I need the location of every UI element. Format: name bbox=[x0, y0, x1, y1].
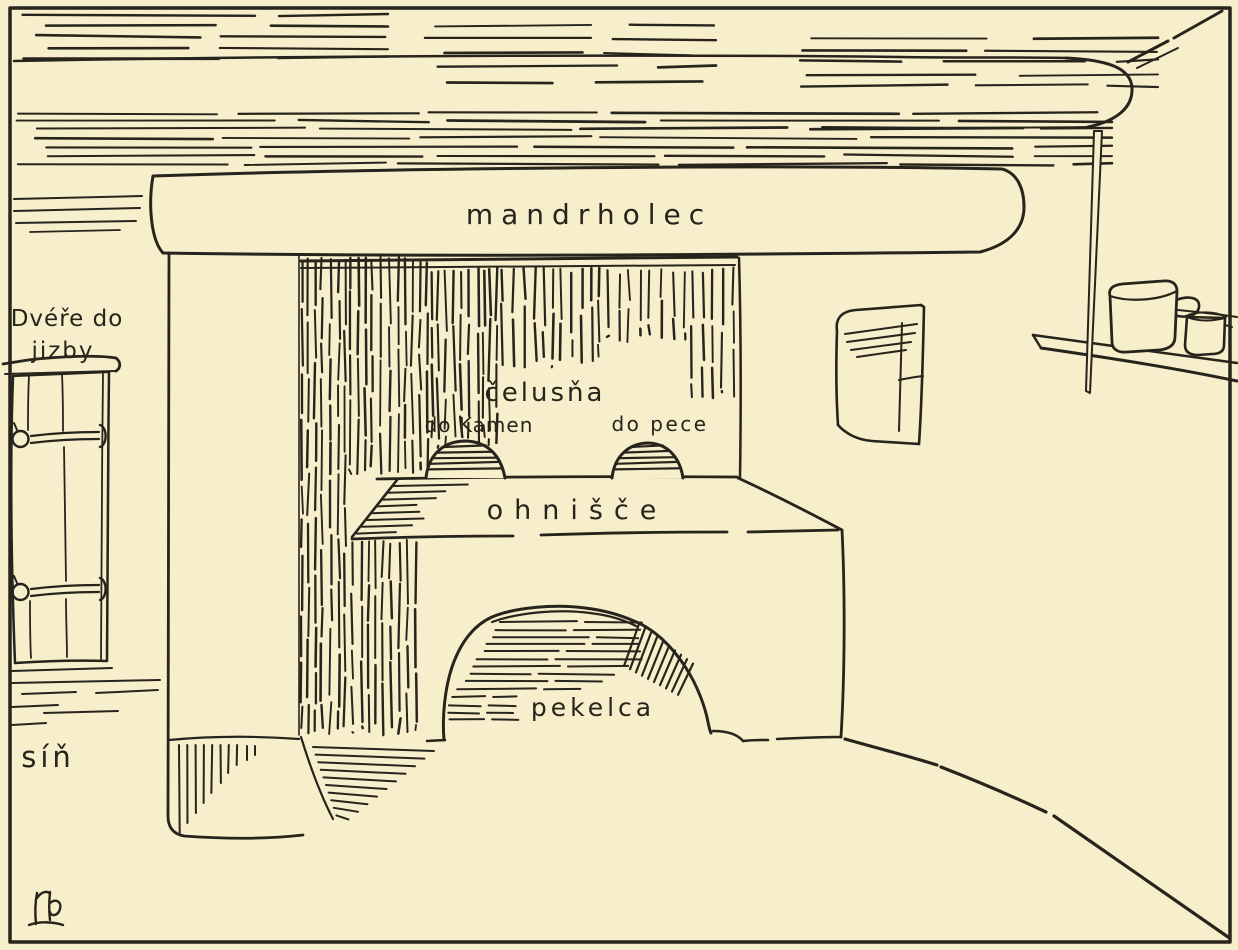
hatch-stroke bbox=[411, 374, 413, 434]
hatch-stroke bbox=[468, 325, 469, 354]
hatch-stroke bbox=[684, 272, 685, 327]
hatch-stroke bbox=[419, 320, 421, 348]
hatch-stroke bbox=[351, 687, 353, 724]
hatch-stroke bbox=[539, 674, 615, 675]
hatch-stroke bbox=[447, 82, 552, 83]
hatch-stroke bbox=[302, 309, 303, 365]
hatch-stroke bbox=[500, 621, 577, 622]
hatch-stroke bbox=[479, 269, 480, 326]
hatch-stroke bbox=[460, 364, 462, 409]
hatch-stroke bbox=[323, 777, 396, 781]
hatch-stroke bbox=[597, 637, 638, 638]
hatch-stroke bbox=[382, 541, 384, 577]
hatch-stroke bbox=[512, 269, 513, 312]
mug-small bbox=[1185, 312, 1232, 355]
hatch-stroke bbox=[747, 147, 1012, 148]
hatch-stroke bbox=[502, 270, 503, 301]
hatch-stroke bbox=[375, 541, 376, 588]
hatch-stroke bbox=[23, 15, 255, 16]
hatch-stroke bbox=[619, 457, 675, 458]
hatch-stroke bbox=[398, 163, 659, 164]
hatch-stroke bbox=[660, 650, 675, 685]
hatch-stroke bbox=[321, 705, 322, 728]
hatch-stroke bbox=[672, 659, 687, 691]
hatch-stroke bbox=[543, 332, 544, 357]
hatch-stroke bbox=[496, 267, 498, 320]
label-dvere-line2: jizby bbox=[30, 338, 94, 364]
hatch-stroke bbox=[452, 696, 485, 697]
floor-edge-right bbox=[845, 739, 1228, 937]
hatch-stroke bbox=[445, 271, 447, 331]
hatch-stroke bbox=[338, 474, 339, 534]
hatch-stroke bbox=[642, 637, 657, 675]
hatch-stroke bbox=[612, 113, 899, 114]
hatch-stroke bbox=[534, 268, 536, 319]
hatch-stroke bbox=[654, 646, 669, 682]
hatch-stroke bbox=[568, 666, 628, 667]
hatch-stroke bbox=[357, 532, 396, 534]
hatch-stroke bbox=[535, 323, 537, 361]
hatch-stroke bbox=[437, 271, 439, 320]
hatch-stroke bbox=[614, 468, 680, 469]
label-ohnisce: ohnišče bbox=[487, 495, 668, 526]
hatch-stroke bbox=[445, 52, 583, 53]
hatch-stroke bbox=[658, 66, 716, 68]
hatch-stroke bbox=[390, 662, 392, 727]
hatch-stroke bbox=[433, 458, 497, 459]
hatch-stroke bbox=[338, 539, 340, 578]
hatch-stroke bbox=[405, 258, 406, 324]
hatch-stroke bbox=[382, 684, 383, 736]
hatch-stroke bbox=[599, 268, 600, 296]
hatch-stroke bbox=[308, 588, 309, 636]
hatch-stroke bbox=[22, 692, 76, 694]
hatch-stroke bbox=[361, 662, 362, 722]
hatch-stroke bbox=[489, 269, 491, 315]
hatch-stroke bbox=[913, 112, 1097, 114]
hatch-stroke bbox=[388, 491, 445, 493]
hatch-stroke bbox=[407, 540, 408, 604]
hatch-stroke bbox=[223, 138, 410, 139]
hatch-stroke bbox=[857, 350, 906, 357]
hatch-stroke bbox=[399, 653, 400, 711]
hatch-stroke bbox=[432, 365, 433, 416]
support-pole bbox=[1086, 131, 1102, 393]
hatch-stroke bbox=[238, 113, 418, 114]
hatch-stroke bbox=[344, 331, 346, 381]
hatch-stroke bbox=[845, 324, 917, 334]
hatch-stroke bbox=[211, 745, 212, 793]
hatch-stroke bbox=[1034, 38, 1158, 39]
hatch-stroke bbox=[721, 333, 722, 388]
hatch-stroke bbox=[369, 695, 370, 732]
label-sin: síň bbox=[21, 740, 75, 774]
hatch-stroke bbox=[844, 155, 1013, 157]
hatch-stroke bbox=[648, 642, 663, 679]
hatch-stroke bbox=[484, 271, 485, 325]
hatch-stroke bbox=[302, 487, 303, 514]
hatch-stroke bbox=[30, 230, 120, 232]
hatch-stroke bbox=[364, 388, 365, 435]
hatch-stroke bbox=[426, 263, 427, 306]
hatch-stroke bbox=[478, 334, 479, 393]
hatch-stroke bbox=[321, 430, 322, 490]
hatch-stroke bbox=[801, 85, 947, 87]
hatch-stroke bbox=[279, 14, 388, 16]
hatch-stroke bbox=[534, 147, 733, 148]
hatch-stroke bbox=[301, 707, 302, 728]
hatch-stroke bbox=[245, 163, 386, 165]
wall-niche-hatch bbox=[845, 324, 917, 357]
hatch-stroke bbox=[513, 320, 514, 366]
hatch-stroke bbox=[598, 345, 599, 357]
hatch-stroke bbox=[321, 495, 323, 544]
hatch-stroke bbox=[497, 326, 498, 360]
hatch-stroke bbox=[398, 257, 399, 301]
hatch-stroke bbox=[326, 785, 387, 789]
floor-lines-left bbox=[12, 668, 160, 725]
hatch-stroke bbox=[307, 431, 308, 468]
hatch-stroke bbox=[349, 470, 351, 474]
hatch-stroke bbox=[630, 25, 714, 26]
hatch-stroke bbox=[560, 324, 561, 360]
hatch-stroke bbox=[307, 640, 308, 697]
hatch-stroke bbox=[35, 138, 213, 139]
hatch-stroke bbox=[320, 129, 572, 130]
hatch-stroke bbox=[398, 414, 399, 472]
hatch-stroke bbox=[344, 554, 345, 606]
hatch-stroke bbox=[338, 343, 339, 379]
hatch-stroke bbox=[552, 314, 553, 359]
hatch-stroke bbox=[488, 319, 490, 381]
hatch-stroke bbox=[627, 309, 628, 342]
hatch-stroke bbox=[321, 770, 406, 774]
hatch-stroke bbox=[679, 163, 887, 165]
hatch-stroke bbox=[648, 325, 649, 334]
hatch-stroke bbox=[416, 674, 417, 722]
hatch-stroke bbox=[344, 614, 345, 671]
hatch-stroke bbox=[340, 301, 341, 339]
hatch-stroke bbox=[524, 268, 526, 298]
hatch-stroke bbox=[405, 442, 406, 469]
hatch-stroke bbox=[449, 705, 481, 706]
hatch-stroke bbox=[613, 39, 716, 40]
hatch-stroke bbox=[313, 747, 434, 751]
hatch-stroke bbox=[344, 455, 345, 504]
label-dvere-line1: Dvéře do bbox=[11, 306, 124, 332]
ceiling-hatch bbox=[17, 14, 1158, 165]
hatch-stroke bbox=[544, 268, 545, 325]
hatch-stroke bbox=[357, 420, 358, 474]
hatch-stroke bbox=[345, 508, 346, 546]
hatch-stroke bbox=[398, 584, 400, 648]
hatch-stroke bbox=[314, 363, 315, 418]
hatch-stroke bbox=[368, 585, 369, 620]
hatch-stroke bbox=[331, 259, 332, 318]
hatch-stroke bbox=[322, 298, 323, 338]
hatch-stroke bbox=[734, 350, 735, 397]
hatch-stroke bbox=[336, 815, 348, 819]
hatch-stroke bbox=[666, 655, 681, 689]
hatch-stroke bbox=[358, 311, 359, 354]
hatch-stroke bbox=[419, 355, 421, 390]
hatch-stroke bbox=[444, 340, 445, 392]
hatch-stroke bbox=[619, 274, 620, 307]
hatch-stroke bbox=[560, 269, 561, 319]
hatch-stroke bbox=[453, 326, 455, 390]
hatch-stroke bbox=[608, 270, 609, 327]
hatch-stroke bbox=[473, 666, 560, 667]
label-pekelca: pekelca bbox=[531, 693, 655, 722]
hatch-stroke bbox=[331, 800, 367, 804]
hearth-drawing: mandrholec čelusňa do bbox=[0, 0, 1238, 950]
hatch-stroke bbox=[390, 627, 391, 659]
hatch-stroke bbox=[483, 333, 484, 374]
hatch-stroke bbox=[580, 127, 787, 128]
hatch-stroke bbox=[365, 440, 366, 470]
label-do-kamen: do Kamen bbox=[425, 413, 534, 437]
hatch-stroke bbox=[703, 273, 704, 317]
hatch-stroke bbox=[598, 301, 599, 342]
hatch-stroke bbox=[607, 336, 609, 337]
hatch-stroke bbox=[371, 260, 372, 290]
hatch-stroke bbox=[307, 474, 309, 515]
hatch-stroke bbox=[489, 705, 516, 706]
room-door bbox=[3, 356, 120, 663]
hatch-stroke bbox=[301, 519, 302, 546]
hatch-stroke bbox=[46, 25, 216, 26]
hatch-stroke bbox=[592, 307, 593, 360]
floor-shadow-fan bbox=[313, 747, 434, 819]
hatch-stroke bbox=[448, 120, 646, 122]
hatch-stroke bbox=[308, 379, 309, 422]
hatch-stroke bbox=[14, 208, 140, 211]
hatch-stroke bbox=[419, 395, 420, 456]
hatch-stroke bbox=[407, 646, 408, 687]
hatch-stroke bbox=[420, 136, 591, 137]
hatch-stroke bbox=[321, 379, 322, 426]
hatch-stroke bbox=[44, 711, 118, 713]
hatch-stroke bbox=[329, 702, 331, 734]
hatch-stroke bbox=[334, 808, 358, 812]
hatch-stroke bbox=[316, 628, 317, 667]
hatch-stroke bbox=[380, 434, 381, 474]
hatch-stroke bbox=[437, 452, 492, 453]
hatch-stroke bbox=[976, 84, 1088, 85]
hatch-stroke bbox=[398, 349, 399, 406]
hatch-stroke bbox=[985, 51, 1157, 52]
hatch-stroke bbox=[352, 651, 353, 679]
hatch-stroke bbox=[398, 718, 400, 733]
hatch-stroke bbox=[493, 696, 516, 697]
hatch-stroke bbox=[220, 48, 388, 49]
hatch-stroke bbox=[390, 371, 391, 411]
hatch-stroke bbox=[581, 316, 582, 363]
hatch-stroke bbox=[316, 755, 425, 759]
hatch-stroke bbox=[367, 519, 423, 521]
hatch-stroke bbox=[329, 324, 330, 355]
hatch-stroke bbox=[673, 319, 674, 339]
hatch-stroke bbox=[394, 485, 468, 487]
hatch-stroke bbox=[338, 425, 339, 469]
hatch-stroke bbox=[585, 622, 642, 623]
hatch-stroke bbox=[703, 325, 704, 360]
hatch-stroke bbox=[389, 544, 390, 579]
hatch-stroke bbox=[600, 137, 857, 139]
hatch-stroke bbox=[406, 608, 408, 640]
hatch-stroke bbox=[661, 269, 662, 297]
hatch-stroke bbox=[406, 332, 407, 366]
hatch-stroke bbox=[469, 361, 470, 416]
hatch-stroke bbox=[12, 668, 112, 671]
hatch-stroke bbox=[900, 164, 1053, 165]
hatch-stroke bbox=[415, 725, 416, 730]
hatch-stroke bbox=[712, 368, 713, 398]
hatch-stroke bbox=[315, 518, 316, 569]
hatch-stroke bbox=[630, 628, 645, 669]
hatch-stroke bbox=[330, 359, 331, 399]
hatch-stroke bbox=[351, 594, 352, 644]
hatch-stroke bbox=[665, 156, 824, 157]
oven-opening-dome bbox=[612, 443, 683, 478]
hatch-stroke bbox=[435, 25, 591, 26]
hatch-stroke bbox=[428, 468, 502, 469]
hatch-stroke bbox=[420, 262, 421, 311]
hatch-stroke bbox=[416, 542, 417, 603]
hatch-stroke bbox=[221, 36, 386, 37]
hearth-left-face-hatch bbox=[351, 540, 417, 735]
hatch-stroke bbox=[702, 367, 703, 396]
hatch-stroke bbox=[383, 498, 436, 500]
hatch-stroke bbox=[271, 26, 388, 27]
hatch-stroke bbox=[96, 690, 158, 693]
hatch-stroke bbox=[12, 723, 46, 725]
hatch-stroke bbox=[36, 35, 200, 37]
hatch-stroke bbox=[438, 324, 439, 370]
hatch-stroke bbox=[555, 681, 602, 682]
label-celusna: čelusňa bbox=[485, 378, 606, 408]
hatch-stroke bbox=[368, 541, 369, 581]
hatch-stroke bbox=[329, 629, 330, 695]
hatch-stroke bbox=[315, 468, 316, 510]
hatch-stroke bbox=[299, 120, 429, 122]
label-do-pece: do pece bbox=[611, 412, 708, 436]
hatch-stroke bbox=[501, 304, 503, 365]
hatch-stroke bbox=[673, 272, 675, 315]
hatch-stroke bbox=[1020, 74, 1158, 75]
hatch-stroke bbox=[448, 713, 479, 714]
hatch-stroke bbox=[390, 417, 391, 471]
hinge-strap-upper bbox=[13, 423, 106, 447]
hatch-stroke bbox=[381, 583, 382, 619]
hatch-stroke bbox=[959, 121, 1112, 122]
hatch-stroke bbox=[800, 60, 901, 61]
wall-lines-left-of-beam bbox=[14, 196, 142, 232]
hatch-stroke bbox=[12, 680, 160, 683]
hatch-stroke bbox=[807, 75, 976, 76]
hatch-stroke bbox=[48, 155, 255, 156]
hinge-strap-lower bbox=[13, 576, 106, 600]
label-mandrholec: mandrholec bbox=[466, 198, 712, 231]
hatch-stroke bbox=[457, 688, 536, 689]
hatch-stroke bbox=[322, 608, 323, 636]
hatch-stroke bbox=[14, 196, 142, 199]
hatch-stroke bbox=[321, 550, 322, 605]
mantel-beam: mandrholec bbox=[151, 167, 1024, 255]
hatch-stroke bbox=[453, 271, 454, 323]
hatch-stroke bbox=[411, 316, 413, 366]
hatch-stroke bbox=[318, 762, 415, 766]
hatch-stroke bbox=[320, 258, 321, 289]
hatch-stroke bbox=[460, 315, 461, 360]
hatch-stroke bbox=[371, 399, 372, 442]
hatch-stroke bbox=[37, 128, 305, 129]
hatch-stroke bbox=[331, 590, 332, 621]
hatch-stroke bbox=[16, 221, 136, 223]
hatch-stroke bbox=[371, 446, 372, 467]
hatch-stroke bbox=[315, 310, 316, 357]
artist-monogram bbox=[29, 892, 63, 925]
hatch-stroke bbox=[406, 694, 407, 733]
hatch-stroke bbox=[438, 66, 617, 67]
hatch-stroke bbox=[648, 271, 649, 318]
hatch-stroke bbox=[732, 268, 733, 305]
hatch-stroke bbox=[321, 344, 322, 373]
hatch-stroke bbox=[359, 258, 360, 306]
hatch-stroke bbox=[692, 271, 693, 317]
hatch-stroke bbox=[358, 359, 359, 416]
hatch-stroke bbox=[628, 270, 630, 300]
hatch-stroke bbox=[378, 505, 417, 507]
hatch-stroke bbox=[691, 384, 692, 397]
hatch-stroke bbox=[412, 441, 413, 473]
hatch-stroke bbox=[12, 705, 58, 707]
hatch-stroke bbox=[404, 369, 405, 401]
hatch-stroke bbox=[391, 581, 392, 618]
hatch-stroke bbox=[338, 261, 339, 292]
hatch-stroke bbox=[432, 272, 433, 319]
hatch-stroke bbox=[228, 745, 229, 773]
hatch-stroke bbox=[847, 333, 915, 342]
hatch-stroke bbox=[400, 543, 401, 581]
hatch-stroke bbox=[596, 81, 702, 82]
hatch-stroke bbox=[380, 257, 381, 298]
hatch-stroke bbox=[373, 512, 420, 514]
hatch-stroke bbox=[18, 114, 217, 115]
hatch-stroke bbox=[179, 745, 180, 833]
hatch-stroke bbox=[362, 525, 412, 527]
hatch-stroke bbox=[344, 677, 346, 726]
hatch-stroke bbox=[329, 793, 377, 797]
